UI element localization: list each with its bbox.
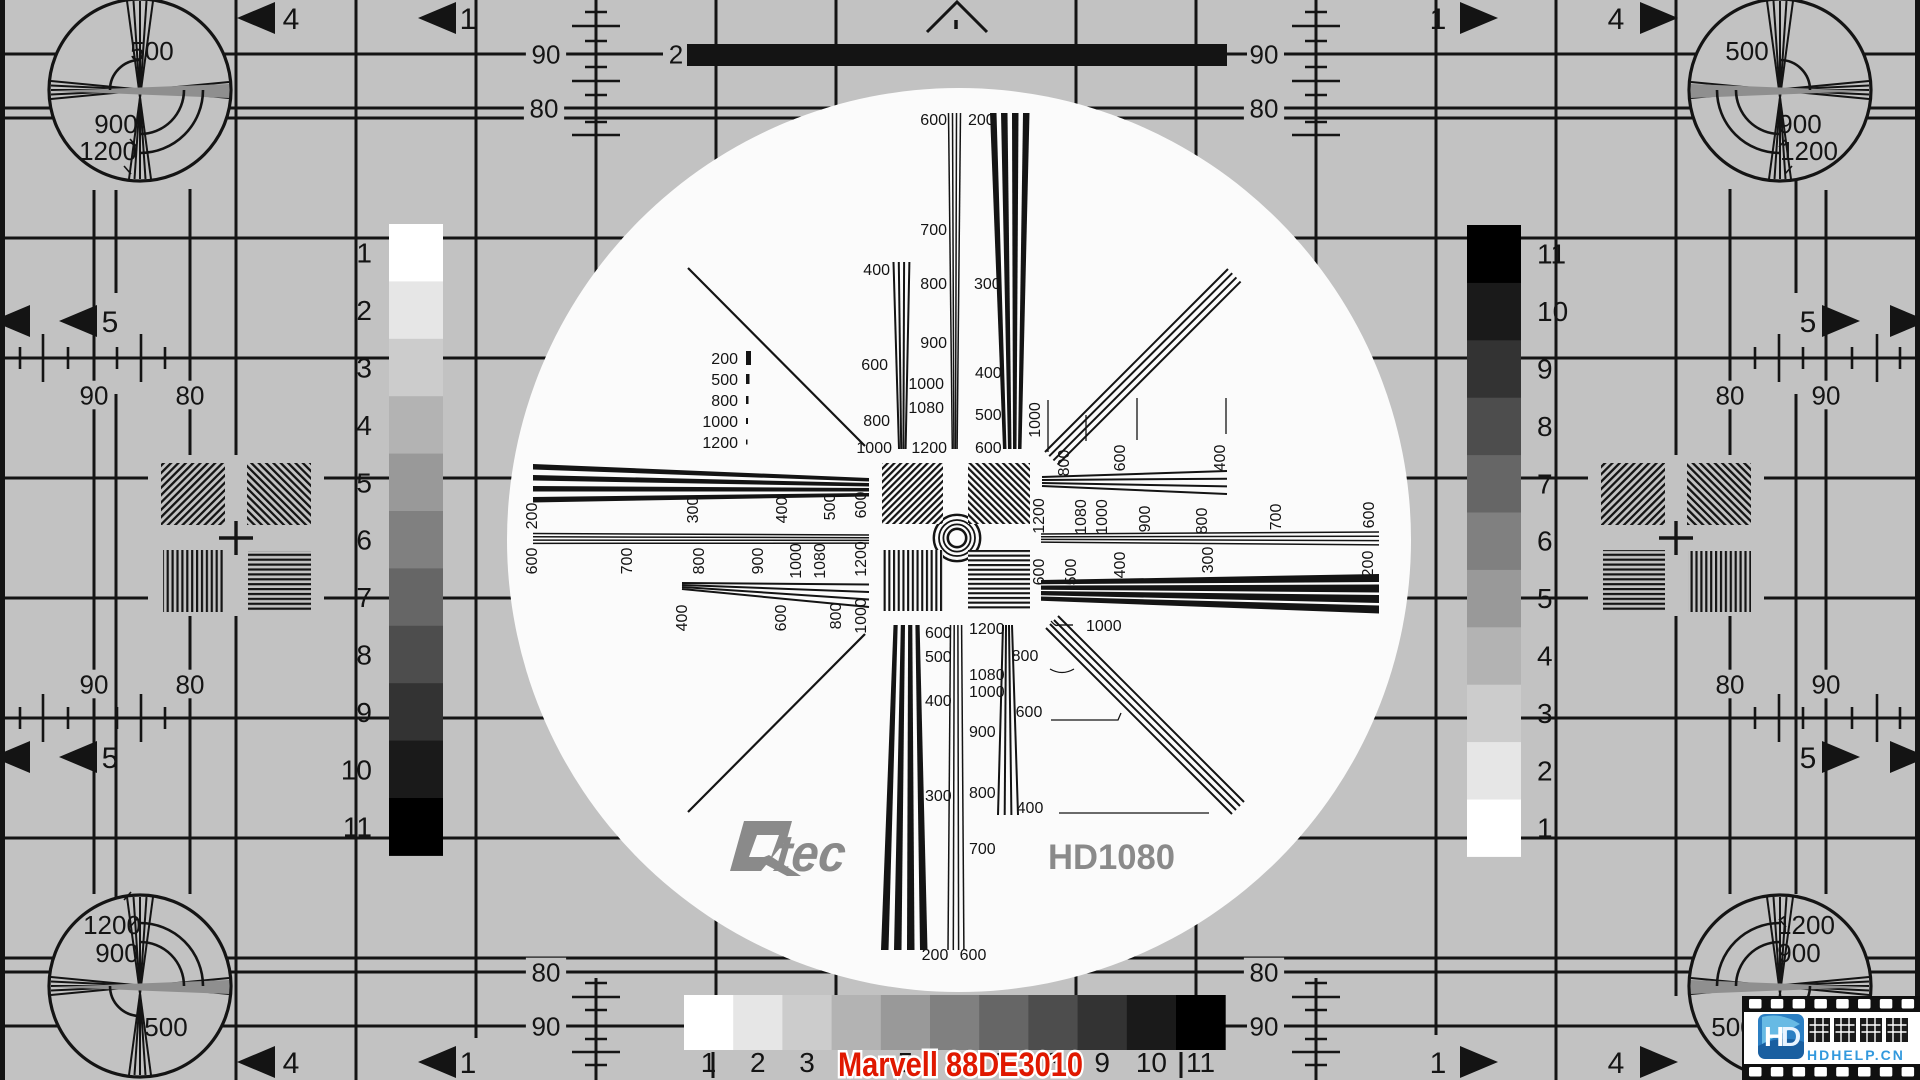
svg-text:800: 800	[828, 603, 845, 630]
svg-text:5: 5	[1800, 742, 1817, 775]
svg-text:5: 5	[356, 467, 372, 498]
svg-text:1: 1	[1430, 3, 1447, 36]
svg-text:900: 900	[1137, 506, 1154, 533]
svg-text:800: 800	[1012, 648, 1039, 665]
svg-text:tec: tec	[773, 825, 849, 883]
svg-text:1000: 1000	[788, 543, 805, 579]
svg-text:10: 10	[1136, 1047, 1167, 1078]
svg-text:800: 800	[1194, 508, 1211, 535]
svg-text:4: 4	[1608, 3, 1625, 36]
svg-text:90: 90	[532, 1011, 561, 1041]
svg-text:700: 700	[619, 548, 636, 575]
svg-text:500: 500	[130, 36, 173, 66]
svg-text:7: 7	[356, 582, 372, 613]
svg-text:80: 80	[1716, 669, 1745, 699]
svg-text:90: 90	[1250, 1011, 1279, 1041]
svg-text:8: 8	[356, 640, 372, 671]
svg-text:9: 9	[356, 697, 372, 728]
svg-text:600: 600	[925, 625, 952, 642]
svg-text:2: 2	[669, 39, 683, 69]
svg-text:5: 5	[1800, 306, 1817, 339]
svg-text:1000: 1000	[908, 376, 944, 393]
svg-text:7: 7	[1537, 468, 1553, 499]
svg-text:400: 400	[975, 365, 1002, 382]
svg-text:1080: 1080	[1073, 499, 1090, 535]
svg-text:11: 11	[1186, 1047, 1215, 1078]
svg-text:400: 400	[674, 605, 691, 632]
svg-text:90: 90	[1250, 39, 1279, 69]
svg-text:80: 80	[530, 93, 559, 123]
svg-text:400: 400	[1112, 552, 1129, 579]
svg-text:2: 2	[356, 295, 372, 326]
svg-text:1200: 1200	[1780, 136, 1838, 166]
svg-text:1200: 1200	[1777, 910, 1835, 940]
svg-text:900: 900	[94, 109, 137, 139]
svg-text:600: 600	[1016, 704, 1043, 721]
svg-text:10: 10	[341, 754, 372, 785]
svg-text:200: 200	[524, 503, 541, 530]
svg-text:1: 1	[1537, 813, 1553, 844]
svg-text:600: 600	[1112, 445, 1129, 472]
svg-text:900: 900	[1777, 938, 1820, 968]
svg-text:400: 400	[863, 262, 890, 279]
svg-text:800: 800	[691, 548, 708, 575]
svg-text:11: 11	[343, 812, 372, 843]
svg-text:1: 1	[356, 238, 372, 269]
svg-text:400: 400	[774, 497, 791, 524]
svg-text:3: 3	[1537, 698, 1553, 729]
svg-text:4: 4	[283, 3, 300, 36]
svg-text:4: 4	[356, 410, 372, 441]
svg-text:900: 900	[1778, 109, 1821, 139]
svg-text:200: 200	[968, 112, 995, 129]
svg-text:300: 300	[685, 497, 702, 524]
svg-text:Marvell 88DE3010: Marvell 88DE3010	[838, 1046, 1083, 1080]
svg-text:700: 700	[969, 841, 996, 858]
svg-text:4: 4	[1537, 641, 1553, 672]
svg-text:600: 600	[1031, 559, 1048, 586]
svg-text:5: 5	[1537, 583, 1553, 614]
svg-text:500: 500	[975, 407, 1002, 424]
svg-text:HDHELP.CN: HDHELP.CN	[1807, 1047, 1905, 1063]
svg-text:900: 900	[750, 548, 767, 575]
svg-text:1200: 1200	[702, 435, 738, 452]
svg-text:10: 10	[1537, 296, 1568, 327]
svg-text:90: 90	[1812, 669, 1841, 699]
svg-text:600: 600	[960, 947, 987, 964]
svg-text:D: D	[1781, 1021, 1801, 1052]
svg-text:3: 3	[799, 1047, 815, 1078]
svg-text:700: 700	[920, 222, 947, 239]
svg-text:90: 90	[80, 669, 109, 699]
svg-text:80: 80	[176, 669, 205, 699]
svg-text:1000: 1000	[1027, 402, 1044, 438]
svg-text:8: 8	[1537, 411, 1553, 442]
svg-text:9: 9	[1537, 354, 1553, 385]
svg-text:1: 1	[460, 3, 477, 36]
svg-text:1080: 1080	[969, 667, 1005, 684]
svg-text:500: 500	[822, 494, 839, 521]
svg-text:1000: 1000	[1086, 618, 1122, 635]
svg-text:1080: 1080	[812, 543, 829, 579]
svg-text:90: 90	[1812, 380, 1841, 410]
svg-text:600: 600	[1361, 502, 1378, 529]
svg-text:3: 3	[356, 353, 372, 384]
svg-text:1080: 1080	[908, 400, 944, 417]
svg-text:700: 700	[1268, 504, 1285, 531]
svg-text:900: 900	[920, 335, 947, 352]
svg-text:80: 80	[1250, 957, 1279, 987]
svg-text:1200: 1200	[969, 621, 1005, 638]
svg-text:500: 500	[925, 649, 952, 666]
svg-text:800: 800	[711, 393, 738, 410]
svg-text:600: 600	[975, 440, 1002, 457]
svg-text:600: 600	[920, 112, 947, 129]
svg-text:200: 200	[1360, 551, 1377, 578]
svg-text:300: 300	[1200, 547, 1217, 574]
svg-text:500: 500	[1063, 559, 1080, 586]
svg-text:2: 2	[750, 1047, 766, 1078]
svg-text:2: 2	[1537, 755, 1553, 786]
svg-text:90: 90	[532, 39, 561, 69]
svg-text:11: 11	[1537, 239, 1566, 270]
svg-text:500: 500	[1725, 36, 1768, 66]
svg-text:1200: 1200	[1031, 498, 1048, 534]
svg-text:80: 80	[1250, 93, 1279, 123]
svg-text:400: 400	[925, 693, 952, 710]
svg-text:200: 200	[711, 351, 738, 368]
svg-text:HD1080: HD1080	[1048, 838, 1175, 877]
svg-text:1000: 1000	[969, 684, 1005, 701]
svg-text:5: 5	[102, 306, 119, 339]
svg-text:800: 800	[969, 785, 996, 802]
svg-text:1200: 1200	[79, 136, 137, 166]
svg-text:80: 80	[176, 380, 205, 410]
svg-text:900: 900	[95, 938, 138, 968]
svg-text:1000: 1000	[853, 598, 870, 634]
svg-text:300: 300	[925, 788, 952, 805]
svg-text:1000: 1000	[1094, 499, 1111, 535]
svg-text:9: 9	[1094, 1047, 1110, 1078]
svg-text:4: 4	[283, 1047, 300, 1080]
svg-text:6: 6	[356, 525, 372, 556]
svg-text:900: 900	[969, 724, 996, 741]
svg-text:500: 500	[711, 372, 738, 389]
svg-text:600: 600	[853, 492, 870, 519]
svg-text:500: 500	[144, 1012, 187, 1042]
svg-text:1000: 1000	[702, 414, 738, 431]
svg-text:1200: 1200	[853, 541, 870, 577]
svg-text:800: 800	[863, 413, 890, 430]
svg-text:600: 600	[524, 548, 541, 575]
svg-text:80: 80	[532, 957, 561, 987]
svg-text:5: 5	[102, 742, 119, 775]
svg-text:1200: 1200	[911, 440, 947, 457]
svg-text:400: 400	[1212, 445, 1229, 472]
svg-text:1: 1	[460, 1047, 477, 1080]
svg-text:1: 1	[1430, 1047, 1447, 1080]
svg-text:200: 200	[922, 947, 949, 964]
svg-text:800: 800	[920, 276, 947, 293]
svg-text:4: 4	[1608, 1047, 1625, 1080]
svg-text:90: 90	[80, 380, 109, 410]
svg-text:6: 6	[1537, 526, 1553, 557]
svg-text:600: 600	[773, 605, 790, 632]
svg-text:400: 400	[1017, 800, 1044, 817]
svg-text:80: 80	[1716, 380, 1745, 410]
svg-text:600: 600	[861, 357, 888, 374]
svg-text:300: 300	[974, 276, 1001, 293]
